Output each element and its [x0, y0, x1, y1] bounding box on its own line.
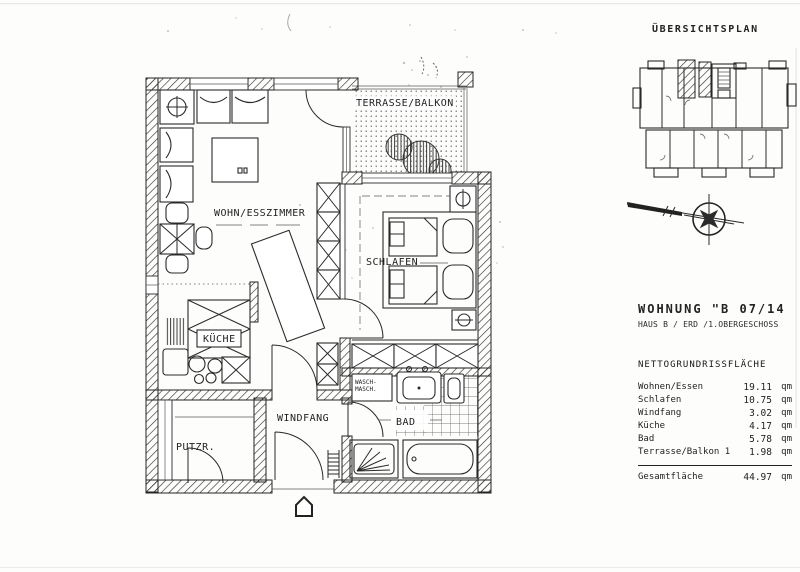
area-total-label: Gesamtfläche — [638, 472, 738, 483]
area-row-label: Terrasse/Balkon 1 — [638, 446, 738, 459]
apartment-title: WOHNUNG "B 07/14 — [638, 302, 796, 316]
overview-highlight-unit — [678, 60, 695, 98]
ceiling-lamp-symbol — [450, 186, 476, 212]
entrance-door — [275, 432, 323, 480]
area-row-label: Wohnen/Essen — [638, 381, 738, 394]
area-row: Bad 5.78 qm — [638, 433, 792, 446]
area-row-unit: qm — [772, 381, 792, 394]
area-row-label: Bad — [638, 433, 738, 446]
kitchen-window — [146, 276, 158, 294]
washing-machine-label-2: MASCH. — [355, 386, 377, 393]
sideboard — [251, 230, 324, 341]
area-row-unit: qm — [772, 433, 792, 446]
wall-lamp-symbol — [452, 310, 476, 330]
dining-set — [160, 203, 212, 273]
washing-machine-label-1: WASCH- — [355, 379, 377, 386]
bedroom-window — [362, 173, 452, 183]
kitchen-base-cabinet — [222, 357, 250, 383]
area-row-value: 19.11 — [738, 381, 772, 394]
area-row: Schlafen 10.75 qm — [638, 394, 792, 407]
coffee-table — [212, 138, 258, 182]
area-row-value: 4.17 — [738, 420, 772, 433]
area-row-unit: qm — [772, 394, 792, 407]
overview-stairwell — [712, 64, 736, 98]
terrace-glass-door — [343, 127, 350, 172]
area-row: Windfang 3.02 qm — [638, 407, 792, 420]
area-row-label: Windfang — [638, 407, 738, 420]
floor-plan-drawing: TERRASSE/BALKON — [0, 0, 800, 572]
overview-title: ÜBERSICHTSPLAN — [652, 24, 759, 35]
apartment-subtitle: HAUS B / ERD /1.OBERGESCHOSS — [638, 320, 796, 329]
kitchen-sink — [189, 356, 222, 384]
bathtub — [403, 440, 477, 478]
area-row-value: 3.02 — [738, 407, 772, 420]
bath-sink — [397, 367, 441, 404]
area-table-heading: NETTOGRUNDRISSFLÄCHE — [638, 360, 792, 370]
living-window-1 — [190, 78, 248, 90]
kitchen-counter — [188, 300, 250, 358]
wardrobe-column — [317, 183, 340, 299]
area-row-unit: qm — [772, 407, 792, 420]
area-total-value: 44.97 — [738, 472, 772, 483]
shower — [350, 440, 398, 478]
apartment-info-panel: WOHNUNG "B 07/14 HAUS B / ERD /1.OBERGES… — [638, 302, 796, 329]
area-total-row: Gesamtfläche 44.97 qm — [638, 472, 792, 483]
kitchen-label: KÜCHE — [203, 332, 236, 345]
bath-label: BAD — [396, 417, 416, 428]
living-room: WOHN/ESSZIMMER — [158, 90, 340, 342]
terrace: TERRASSE/BALKON — [352, 72, 473, 181]
area-row: Küche 4.17 qm — [638, 420, 792, 433]
bathroom: WASCH- MASCH. BAD — [350, 367, 478, 479]
area-row-label: Küche — [638, 420, 738, 433]
scanned-floorplan-page: { "overview": { "title": "ÜBERSICHTSPLAN… — [0, 0, 800, 572]
vestibule-radiator — [328, 450, 339, 478]
vestibule: WINDFANG — [277, 413, 339, 516]
area-table-rows: Wohnen/Essen 19.11 qm Schlafen 10.75 qm … — [638, 381, 792, 459]
bedroom-door — [344, 299, 383, 338]
kitchen: KÜCHE — [163, 300, 250, 384]
area-row-value: 5.78 — [738, 433, 772, 446]
area-row-value: 1.98 — [738, 446, 772, 459]
kitchen-hall-door — [272, 345, 317, 390]
kitchen-radiator — [165, 318, 186, 345]
north-arrow-compass — [627, 194, 744, 245]
washing-machine: WASCH- MASCH. — [352, 374, 392, 401]
kitchen-appliance — [163, 349, 188, 375]
area-total-unit: qm — [772, 472, 792, 483]
utility-room: PUTZR. — [176, 442, 215, 453]
living-bedroom-partition — [340, 184, 345, 299]
toilet — [444, 374, 464, 403]
area-table: NETTOGRUNDRISSFLÄCHE Wohnen/Essen 19.11 … — [638, 360, 792, 483]
area-row-value: 10.75 — [738, 394, 772, 407]
area-table-divider — [638, 465, 792, 466]
area-row-unit: qm — [772, 446, 792, 459]
entrance-arrow — [296, 497, 312, 516]
utility-label: PUTZR. — [176, 442, 215, 453]
terrace-door — [306, 90, 343, 127]
living-room-label: WOHN/ESSZIMMER — [214, 208, 306, 219]
hall-cupboards — [317, 343, 338, 385]
terrace-label: TERRASSE/BALKON — [356, 98, 454, 109]
overview-plan — [633, 60, 796, 177]
area-row: Wohnen/Essen 19.11 qm — [638, 381, 792, 394]
bath-door — [348, 402, 383, 437]
terrace-pillar — [458, 72, 473, 87]
area-row-unit: qm — [772, 420, 792, 433]
area-row-label: Schlafen — [638, 394, 738, 407]
vestibule-label: WINDFANG — [277, 413, 329, 424]
utility-door — [188, 448, 223, 483]
living-window-2 — [274, 78, 338, 90]
area-row: Terrasse/Balkon 1 1.98 qm — [638, 446, 792, 459]
wardrobe-row — [352, 344, 478, 368]
bedroom-label: SCHLAFEN — [366, 257, 418, 268]
